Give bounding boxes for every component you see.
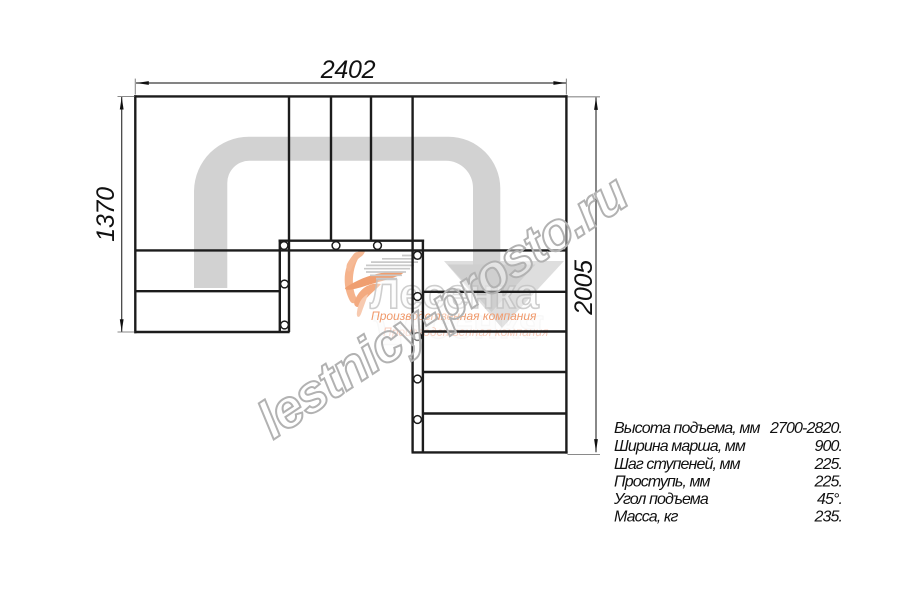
svg-text:1370: 1370 xyxy=(92,187,120,242)
svg-text:2005: 2005 xyxy=(570,260,598,316)
svg-text:235.: 235. xyxy=(813,508,842,525)
svg-text:Шаг ступеней, мм: Шаг ступеней, мм xyxy=(614,456,741,473)
svg-text:45°.: 45°. xyxy=(817,491,842,508)
svg-text:900.: 900. xyxy=(814,438,842,455)
svg-text:225.: 225. xyxy=(813,473,842,490)
svg-text:Угол подъема: Угол подъема xyxy=(613,491,709,508)
svg-text:225.: 225. xyxy=(813,456,842,473)
svg-text:Ширина марша, мм: Ширина марша, мм xyxy=(614,438,746,455)
svg-text:2700-2820.: 2700-2820. xyxy=(769,420,842,437)
svg-text:2402: 2402 xyxy=(320,56,376,84)
svg-text:Проступь, мм: Проступь, мм xyxy=(614,473,711,490)
svg-text:Масса, кг: Масса, кг xyxy=(614,508,679,525)
svg-text:Высота подъема, мм: Высота подъема, мм xyxy=(614,420,760,437)
